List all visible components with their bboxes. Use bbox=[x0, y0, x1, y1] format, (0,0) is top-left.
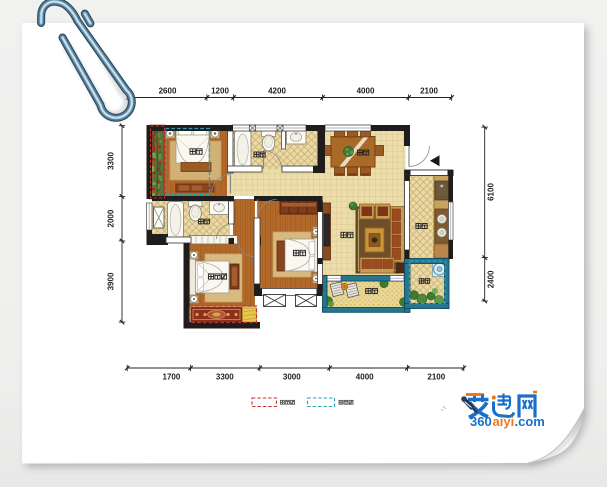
svg-text:3900: 3900 bbox=[107, 272, 116, 290]
svg-text:2000: 2000 bbox=[107, 209, 116, 227]
svg-text:4000: 4000 bbox=[357, 87, 375, 96]
svg-text:6100: 6100 bbox=[487, 183, 496, 201]
svg-text:aiyi: aiyi bbox=[493, 414, 515, 429]
svg-text:2400: 2400 bbox=[487, 270, 496, 288]
svg-text:2100: 2100 bbox=[427, 373, 445, 382]
svg-text:360: 360 bbox=[470, 414, 492, 429]
svg-text:3300: 3300 bbox=[107, 152, 116, 170]
svg-text:2100: 2100 bbox=[420, 87, 438, 96]
svg-text:.com: .com bbox=[515, 414, 545, 429]
svg-text:3000: 3000 bbox=[283, 373, 301, 382]
svg-text:4200: 4200 bbox=[268, 87, 286, 96]
svg-text:1200: 1200 bbox=[211, 87, 229, 96]
svg-text:1700: 1700 bbox=[163, 373, 181, 382]
svg-text:2600: 2600 bbox=[159, 87, 177, 96]
svg-text:3300: 3300 bbox=[216, 373, 234, 382]
svg-text:4000: 4000 bbox=[356, 373, 374, 382]
